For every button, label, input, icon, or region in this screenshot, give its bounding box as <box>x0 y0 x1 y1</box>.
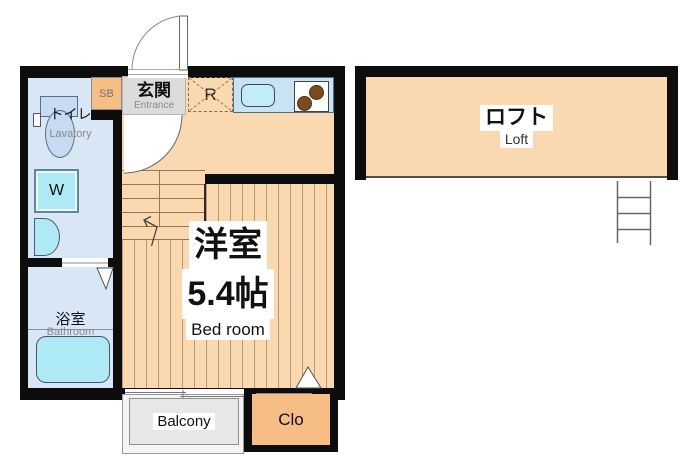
shoe-box: SB <box>91 77 122 110</box>
washer-box: W <box>34 169 79 213</box>
entrance-hall: 玄関 Entrance <box>122 76 186 115</box>
bathroom-door-opening <box>62 258 108 267</box>
closet-label: Clo <box>278 410 304 430</box>
refrigerator-space: R <box>188 77 233 112</box>
kitchen-sink <box>241 84 275 107</box>
bathtub <box>36 336 110 383</box>
loft-wall-top <box>355 66 678 77</box>
loft-ladder-icon <box>618 181 651 245</box>
loft-wall-right <box>667 66 678 180</box>
entrance-door-arc <box>132 16 180 70</box>
stove-burner-icon <box>297 96 312 111</box>
bedroom-top-wall <box>205 174 345 184</box>
entrance-door-leaf <box>180 16 188 70</box>
loft-label-en: Loft <box>500 131 533 148</box>
loft-label-jp: ロフト <box>480 105 553 131</box>
stair-divider-line <box>159 170 160 227</box>
loft-room: ロフト Loft <box>366 77 667 178</box>
balcony-label: Balcony <box>153 413 214 430</box>
closet-box: Clo <box>252 394 330 445</box>
entrance-label-jp: 玄関 <box>137 81 171 100</box>
bedroom-labels: 洋室 5.4帖 Bed room <box>122 221 334 340</box>
lavatory-label-en: Lavatory <box>28 128 113 140</box>
washer-label: W <box>49 182 64 200</box>
bedroom-label-jp: 洋室 <box>189 221 267 269</box>
bedroom-label-size: 5.4帖 <box>182 269 273 319</box>
refrigerator-label: R <box>204 85 216 105</box>
entrance-door-opening <box>128 66 188 78</box>
loft-wall-left <box>355 66 366 180</box>
floor-plan: トイレ Lavatory W 浴室 Bathroom SB 玄関 Entranc… <box>0 0 700 465</box>
bedroom-label-en: Bed room <box>186 319 270 340</box>
shoe-box-label: SB <box>99 88 114 100</box>
stove-burner-icon <box>309 85 324 100</box>
balcony-deck: Balcony <box>129 398 239 445</box>
entrance-label-en: Entrance <box>134 100 174 111</box>
